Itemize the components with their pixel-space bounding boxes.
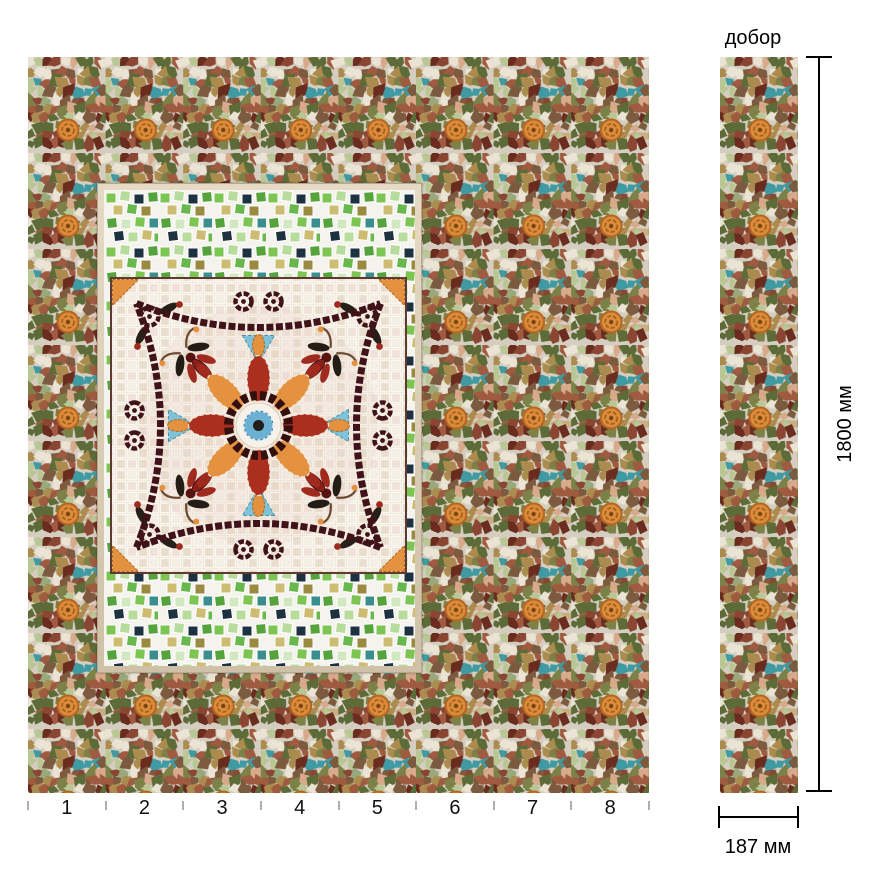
ruler-number: 7	[527, 797, 538, 820]
ruler-number: 5	[372, 797, 383, 820]
mosaic-medallion	[110, 277, 407, 574]
ruler-tick	[105, 801, 107, 810]
height-dimension-cap-top	[806, 56, 832, 58]
ruler-tick	[27, 801, 29, 810]
width-dimension-label: 187 мм	[725, 836, 791, 858]
height-dimension-cap-bottom	[806, 790, 832, 792]
ruler-number: 3	[217, 797, 228, 820]
extension-strip-panel	[720, 57, 798, 793]
height-dimension-label: 1800 мм	[834, 385, 856, 463]
ruler-tick	[182, 801, 184, 810]
ruler-tick	[338, 801, 340, 810]
width-dimension-cap-right	[797, 806, 799, 828]
ruler-number: 1	[61, 797, 72, 820]
ruler-number: 4	[294, 797, 305, 820]
width-dimension-cap-left	[718, 806, 720, 828]
ruler-tick	[493, 801, 495, 810]
ruler: 12345678	[28, 797, 649, 823]
mural-layout-canvas: добор	[0, 0, 886, 886]
ruler-tick	[648, 801, 650, 810]
ruler-number: 2	[139, 797, 150, 820]
ruler-tick	[415, 801, 417, 810]
width-dimension-line	[719, 816, 799, 818]
height-dimension-line	[818, 57, 820, 792]
strip-label: добор	[725, 27, 782, 49]
medallion-graphic	[112, 279, 405, 572]
ruler-number: 6	[449, 797, 460, 820]
main-mural-panel	[28, 57, 649, 793]
ruler-number: 8	[605, 797, 616, 820]
mosaic-inset-frame	[97, 183, 422, 673]
ruler-tick	[260, 801, 262, 810]
ruler-tick	[570, 801, 572, 810]
terrazzo-texture-strip	[720, 57, 798, 793]
